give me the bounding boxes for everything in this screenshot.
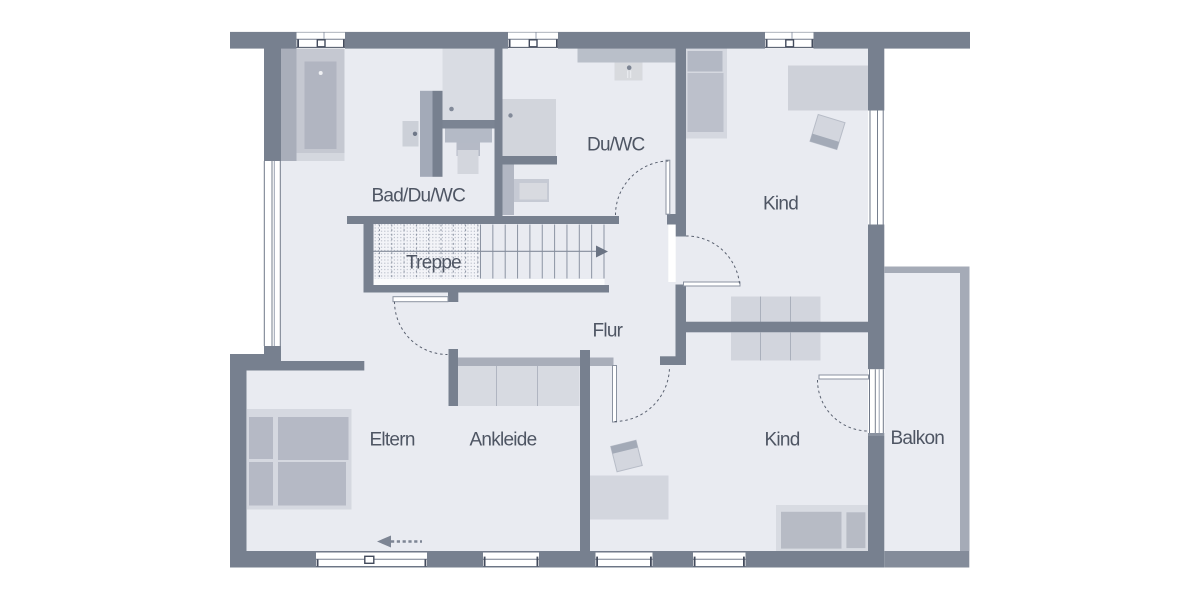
svg-text:Kind: Kind bbox=[763, 194, 798, 215]
svg-text:Bad/Du/WC: Bad/Du/WC bbox=[372, 186, 466, 207]
svg-text:Ankleide: Ankleide bbox=[470, 429, 537, 450]
svg-text:Du/WC: Du/WC bbox=[587, 135, 645, 156]
svg-text:Kind: Kind bbox=[765, 429, 800, 450]
svg-text:Eltern: Eltern bbox=[370, 429, 415, 450]
svg-text:Flur: Flur bbox=[593, 320, 624, 341]
svg-text:Balkon: Balkon bbox=[891, 428, 945, 449]
svg-text:Treppe: Treppe bbox=[406, 253, 461, 274]
